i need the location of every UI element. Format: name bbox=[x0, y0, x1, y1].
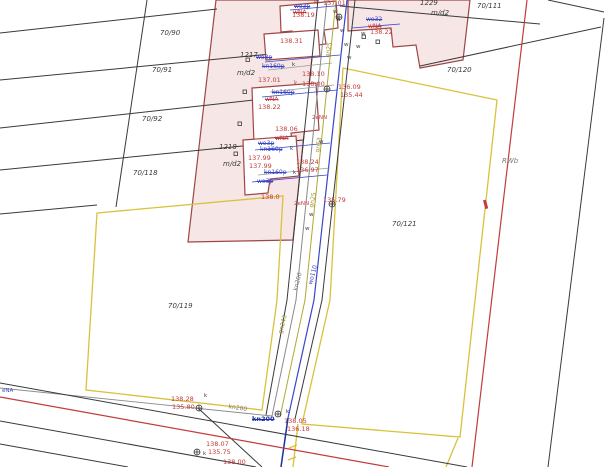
crossed-utility: wNA bbox=[275, 136, 289, 142]
sewer-line-label: kn200 bbox=[293, 272, 304, 292]
manhole-mark: k bbox=[294, 81, 297, 87]
valve-mark: w bbox=[309, 213, 314, 219]
valve-mark: w bbox=[344, 43, 349, 49]
valve-mark: w bbox=[333, 10, 338, 16]
parcel-70-121: 70/121 bbox=[392, 221, 417, 228]
elevation: 138.06 bbox=[275, 126, 298, 133]
parcel-70-119: 70/119 bbox=[168, 303, 193, 310]
crossed-utility: wo32 bbox=[366, 17, 382, 23]
crossed-utility: kn160p bbox=[260, 147, 283, 153]
elevation: 138.24 bbox=[296, 159, 319, 166]
cable-label: eNA bbox=[2, 389, 13, 395]
elevation: 135.79 bbox=[323, 197, 346, 204]
parcel-70-90: 70/90 bbox=[160, 30, 180, 37]
manhole-mark: k bbox=[203, 452, 206, 458]
map-labels: 70/9070/9170/9270/11870/11970/12070/1217… bbox=[0, 0, 605, 467]
gas-line-label: gn243 bbox=[278, 315, 289, 335]
elevation: 138.00 bbox=[302, 81, 325, 88]
elevation: 136.09 bbox=[338, 84, 361, 91]
manhole-mark: k bbox=[204, 394, 207, 400]
elevation: 138.28 bbox=[171, 396, 194, 403]
cable-label: 2eNN bbox=[312, 116, 327, 122]
valve-mark: w bbox=[340, 29, 345, 35]
elevation: 138.10 bbox=[302, 71, 325, 78]
elevation: 137.99 bbox=[248, 155, 271, 162]
elevation: 138.0 bbox=[261, 194, 280, 201]
elevation: 135.44 bbox=[340, 92, 363, 99]
parcel-70-92: 70/92 bbox=[142, 116, 162, 123]
crossed-utility: wNA bbox=[368, 24, 382, 30]
parcel-70-91: 70/91 bbox=[152, 67, 172, 74]
elevation: 136.18 bbox=[287, 426, 310, 433]
crossed-utility: wo3p bbox=[257, 179, 273, 185]
manhole-mark: k bbox=[293, 171, 296, 177]
crossed-utility: wNA bbox=[265, 97, 279, 103]
elevation: 138.00 bbox=[223, 459, 246, 466]
valve-mark: w bbox=[356, 45, 361, 51]
manhole-mark: k bbox=[290, 147, 293, 153]
elevation: 138.07 bbox=[206, 441, 229, 448]
area-code-rwb: RWb bbox=[502, 158, 518, 165]
crossed-utility: wo3p bbox=[256, 55, 272, 61]
valve-mark: w bbox=[305, 227, 310, 233]
building-use-code: m/d2 bbox=[223, 161, 241, 168]
gas-line-label: gn25 bbox=[309, 192, 318, 208]
crossed-utility: wo3p bbox=[294, 4, 310, 10]
manhole-mark: k bbox=[292, 63, 295, 69]
elevation: 135.80 bbox=[172, 404, 195, 411]
valve-mark: w bbox=[319, 140, 324, 146]
crossed-utility: kn160p bbox=[264, 170, 287, 176]
crossed-utility: wNA bbox=[293, 10, 307, 16]
gas-line-label: gn25 bbox=[325, 42, 334, 58]
elevation: 137.01 bbox=[323, 0, 346, 7]
water-line-label: wo110 bbox=[308, 265, 319, 286]
building-1229: 1229 bbox=[420, 0, 438, 7]
parcel-70-120: 70/120 bbox=[447, 67, 472, 74]
elevation: 138.31 bbox=[280, 38, 303, 45]
valve-mark: w bbox=[361, 32, 366, 38]
crossed-utility: kn160p bbox=[262, 64, 285, 70]
valve-mark: w bbox=[336, 18, 341, 24]
elevation: 138.22 bbox=[258, 104, 281, 111]
valve-mark: w bbox=[347, 56, 352, 62]
building-use-code: m/d2 bbox=[237, 70, 255, 77]
crossed-utility: kn160p bbox=[272, 90, 295, 96]
building-use-code: m/d2 bbox=[431, 10, 449, 17]
elevation: 137.01 bbox=[258, 77, 281, 84]
manhole-mark: k bbox=[314, 0, 317, 6]
sewer-line-label: kn200 bbox=[228, 404, 247, 413]
parcel-70-118: 70/118 bbox=[133, 170, 158, 177]
manhole-mark: k bbox=[286, 410, 289, 416]
elevation: 138.05 bbox=[284, 418, 307, 425]
building-1218: 1218 bbox=[219, 144, 237, 151]
crossed-utility: kn200 bbox=[252, 416, 275, 423]
elevation: 136.97 bbox=[296, 167, 319, 174]
cadastral-map: 70/9070/9170/9270/11870/11970/12070/1217… bbox=[0, 0, 605, 467]
elevation: 135.75 bbox=[208, 449, 231, 456]
parcel-70-111: 70/111 bbox=[477, 3, 502, 10]
